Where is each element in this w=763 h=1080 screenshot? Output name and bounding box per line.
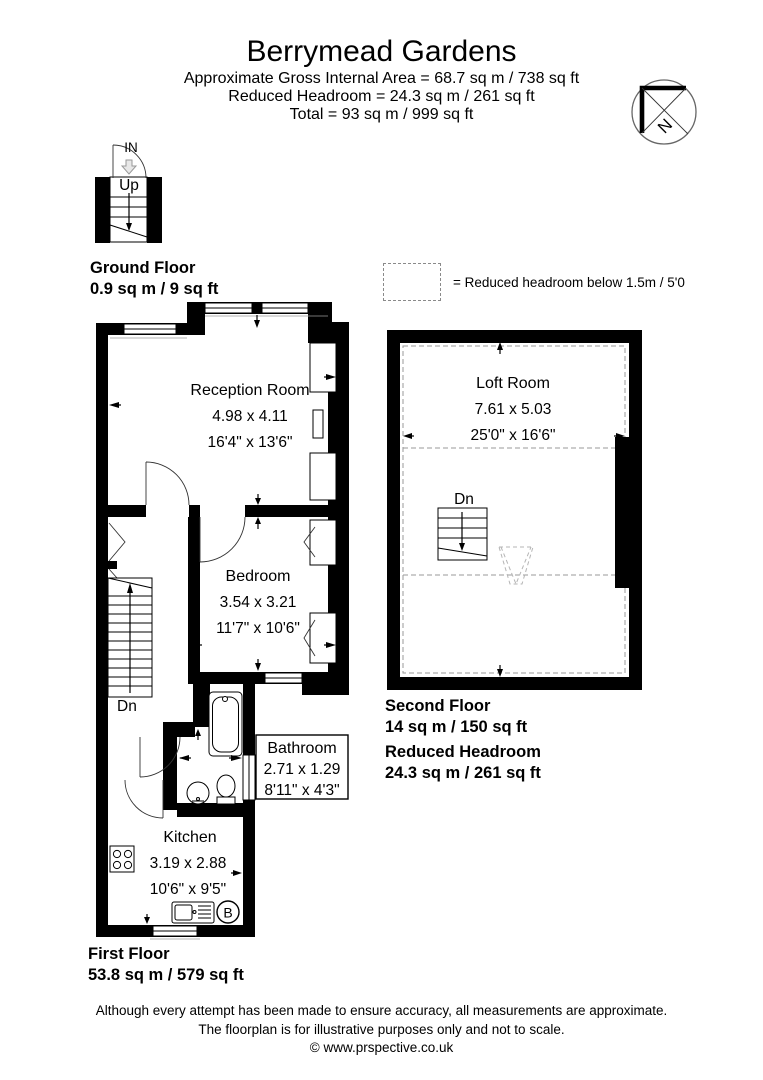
reduced-headroom-dashed-lines <box>403 346 625 673</box>
ground-floor-caption: Ground Floor 0.9 sq m / 9 sq ft <box>90 258 218 300</box>
stairs-down <box>438 508 487 560</box>
stove-hob <box>110 846 134 872</box>
reduced-headroom-legend: = Reduced headroom below 1.5m / 5'0 <box>383 263 685 301</box>
first-floor-name: First Floor <box>88 944 244 965</box>
stairs-dn-label: Dn <box>117 698 137 715</box>
toilet <box>217 775 235 804</box>
bedroom-label: Bedroom 3.54 x 3.21 11'7" x 10'6" <box>216 568 300 637</box>
kitchen-sink <box>172 902 214 923</box>
bedroom-metric: 3.54 x 3.21 <box>220 594 297 611</box>
second-floor-caption: Second Floor 14 sq m / 150 sq ft Reduced… <box>385 696 541 784</box>
second-floor-area: 14 sq m / 150 sq ft <box>385 717 541 738</box>
ground-floor-name: Ground Floor <box>90 258 218 279</box>
bathroom-name: Bathroom <box>267 740 336 757</box>
loft-room-label: Loft Room 7.61 x 5.03 25'0" x 16'6" <box>470 375 555 444</box>
stairs-down <box>108 578 152 697</box>
floorplan-page: Berrymead Gardens Approximate Gross Inte… <box>0 0 763 1080</box>
stairs-dn-label: Dn <box>454 491 474 508</box>
second-floor-plan: Dn Loft Room 7.61 x 5.03 25'0" x 16'6" <box>383 326 645 694</box>
bedroom-name: Bedroom <box>226 568 291 585</box>
loft-imperial: 25'0" x 16'6" <box>470 427 555 444</box>
first-floor-caption: First Floor 53.8 sq m / 579 sq ft <box>88 944 244 986</box>
bathroom-label-box: Bathroom 2.71 x 1.29 8'11" x 4'3" <box>256 735 348 799</box>
kitchen-label: Kitchen 3.19 x 2.88 10'6" x 9'5" <box>150 829 227 898</box>
kitchen-name: Kitchen <box>163 829 216 846</box>
bedroom-imperial: 11'7" x 10'6" <box>216 620 300 637</box>
kitchen-imperial: 10'6" x 9'5" <box>150 881 226 898</box>
basin <box>187 782 209 804</box>
boiler-label: B <box>223 905 232 921</box>
footer-disclaimer: Although every attempt has been made to … <box>0 1002 763 1058</box>
loft-metric: 7.61 x 5.03 <box>475 401 552 418</box>
second-floor-name: Second Floor <box>385 696 541 717</box>
reception-imperial: 16'4" x 13'6" <box>207 434 292 451</box>
bathtub <box>209 692 242 756</box>
kitchen-metric: 3.19 x 2.88 <box>150 855 227 872</box>
disclaimer-line1: Although every attempt has been made to … <box>0 1002 763 1021</box>
entry-direction-arrow-icon <box>122 160 136 174</box>
bathroom-imperial: 8'11" x 4'3" <box>264 782 339 799</box>
reception-room-label: Reception Room 4.98 x 4.11 16'4" x 13'6" <box>190 382 309 451</box>
reception-metric: 4.98 x 4.11 <box>212 408 288 425</box>
second-floor-reduced-area: 24.3 sq m / 261 sq ft <box>385 763 541 784</box>
second-floor-reduced-label: Reduced Headroom <box>385 742 541 763</box>
legend-text: = Reduced headroom below 1.5m / 5'0 <box>453 275 685 290</box>
first-floor-plan: Dn <box>88 295 380 945</box>
reception-name: Reception Room <box>190 382 309 399</box>
wall <box>95 177 110 243</box>
loft-name: Loft Room <box>476 375 550 392</box>
bathroom-metric: 2.71 x 1.29 <box>264 761 341 778</box>
compass-north-icon: N <box>622 70 712 160</box>
boiler: B <box>217 901 239 923</box>
first-floor-area: 53.8 sq m / 579 sq ft <box>88 965 244 986</box>
copyright-line: © www.prspective.co.uk <box>0 1039 763 1058</box>
up-label: Up <box>119 177 139 194</box>
dashed-legend-swatch <box>383 263 441 301</box>
disclaimer-line2: The floorplan is for illustrative purpos… <box>0 1021 763 1040</box>
in-label: IN <box>124 140 138 155</box>
page-title: Berrymead Gardens <box>0 34 763 70</box>
ground-floor-plan: IN Up <box>93 138 168 250</box>
skylight-outline <box>499 547 533 584</box>
wall <box>147 177 162 243</box>
dimension-ticks <box>403 342 625 677</box>
